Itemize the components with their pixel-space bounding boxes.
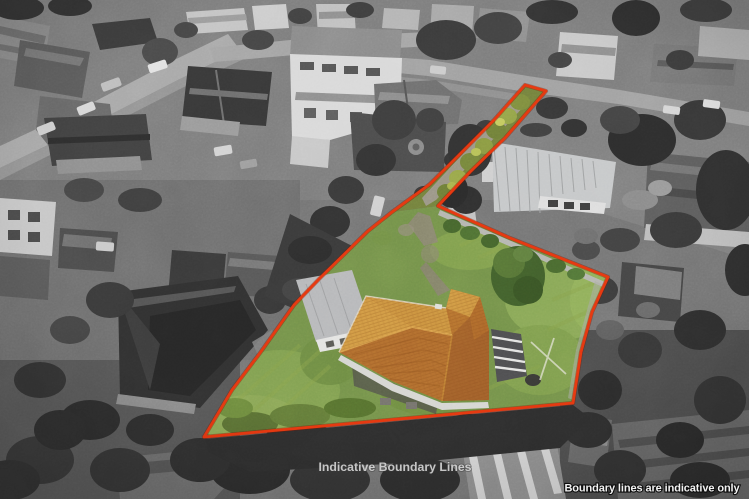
svg-text:Indicative Boundary Lines: Indicative Boundary Lines: [318, 460, 471, 474]
svg-text:Boundary lines are indicative: Boundary lines are indicative only: [564, 483, 740, 495]
